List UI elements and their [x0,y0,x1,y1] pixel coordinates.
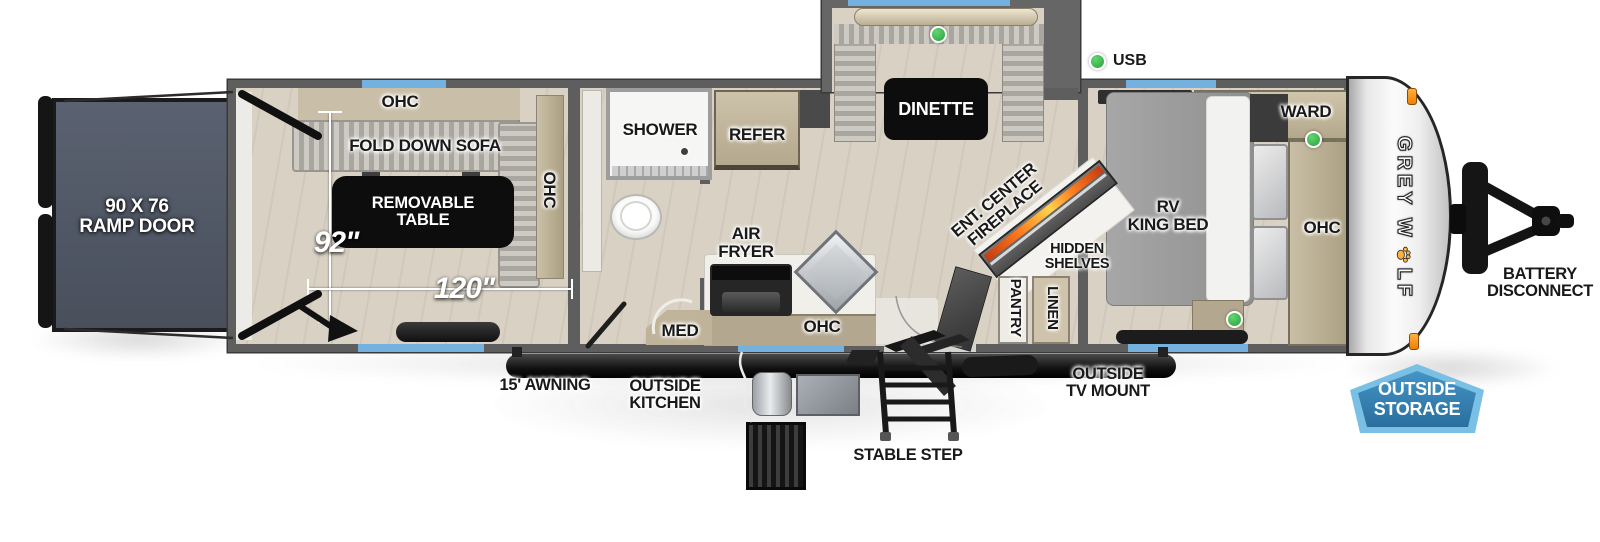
headboard-cushion [1252,226,1288,300]
linen-label: LINEN [1044,273,1060,343]
awning-bracket [512,347,522,357]
dim-tick [318,321,342,323]
outside-kitchen-label: OUTSIDE KITCHEN [615,378,715,413]
hitch-coupler-tip [1556,214,1574,228]
fold-down-sofa-label: FOLD DOWN SOFA [330,137,520,155]
rolled-mat [396,322,500,342]
hitch-a-frame [1484,186,1540,217]
air-fryer-label: AIR FRYER [706,225,786,261]
toilet-seat [620,201,652,231]
slide-wall-stub [1044,88,1078,100]
awning-bracket [1158,347,1168,357]
hitch-mount [1450,204,1466,234]
garage-width-dim: 92" [296,226,376,260]
brand-logo: GREY W LF [1392,123,1416,313]
battery-disconnect-label: BATTERY DISCONNECT [1452,266,1600,301]
refrigerator-label: REFER [714,126,800,144]
clearance-light [1407,88,1417,105]
clearance-light [1409,333,1419,350]
headboard-cushion [1252,144,1288,220]
usb-indicator-dot [1089,53,1106,70]
garage-ohc-label: OHC [365,93,435,111]
stable-step-label: STABLE STEP [838,447,978,464]
outside-tv-mount-bracket [962,355,1039,378]
usb-indicator-dot [930,26,947,43]
rv-king-bed-label: RV KING BED [1118,198,1218,234]
garage-bath-wall [568,88,580,352]
dinette-label: DINETTE [898,100,974,119]
kitchen-upper-counter [800,90,830,128]
bedroom-ohc-cabinet [1288,140,1350,346]
brand-logo-suffix: LF [1393,268,1416,300]
outside-tv-mount-label: OUTSIDE TV MOUNT [1038,366,1178,401]
garage-length-dim: 120" [412,272,516,306]
window [358,344,484,352]
air-fryer-front [722,292,780,312]
bath-cabinet [582,90,602,272]
paw-icon [1396,246,1413,263]
ramp-door-label: 90 X 76 RAMP DOOR [57,197,217,237]
bedroom-indicator-dot [1305,131,1322,148]
brand-logo-prefix: GREY W [1393,136,1416,241]
med-cabinet-label: MED [650,322,710,340]
slide-topper [854,8,1038,26]
pantry-label: PANTRY [1007,273,1023,343]
shower-threshold [612,166,708,176]
removable-table-label: REMOVABLE TABLE [372,195,474,230]
window [1126,80,1216,88]
wardrobe-label: WARD [1270,103,1342,121]
awning-label: 15' AWNING [495,377,595,394]
outside-kitchen-griddle [796,374,860,416]
shower-label: SHOWER [615,121,705,139]
dinette-table: DINETTE [884,78,988,140]
hitch-coupler [1532,206,1560,236]
hitch-ball-socket [1542,217,1551,226]
shower-drain [680,147,689,156]
outside-storage-badge-label: OUTSIDE STORAGE [1356,379,1478,419]
dim-tick [307,279,309,299]
rear-opening-frame [236,92,252,340]
kitchen-ohc-label: OHC [790,318,854,336]
usb-callout: USB [1089,52,1147,70]
usb-label: USB [1113,52,1147,70]
dim-tick [318,111,342,113]
cooktop [712,266,790,280]
hitch-a-frame [1484,228,1540,252]
window [1128,344,1248,352]
window [362,80,446,88]
garage-side-ohc-label: OHC [540,155,558,225]
window [848,0,1010,6]
ramp-rail [38,96,53,208]
bedroom-indicator-dot [1226,311,1243,328]
hidden-shelves-label: HIDDEN SHELVES [1039,242,1115,272]
battery-box [1462,162,1488,274]
outside-kitchen-sink-canister [752,372,792,416]
dim-tick [571,279,573,299]
bedroom-ohc-label: OHC [1290,219,1354,237]
floorplan: REMOVABLE TABLE DINETTE USB [0,0,1600,542]
outside-kitchen-grate [746,422,806,490]
ramp-rail [38,214,53,328]
bedroom-tv-bar [1116,330,1248,344]
